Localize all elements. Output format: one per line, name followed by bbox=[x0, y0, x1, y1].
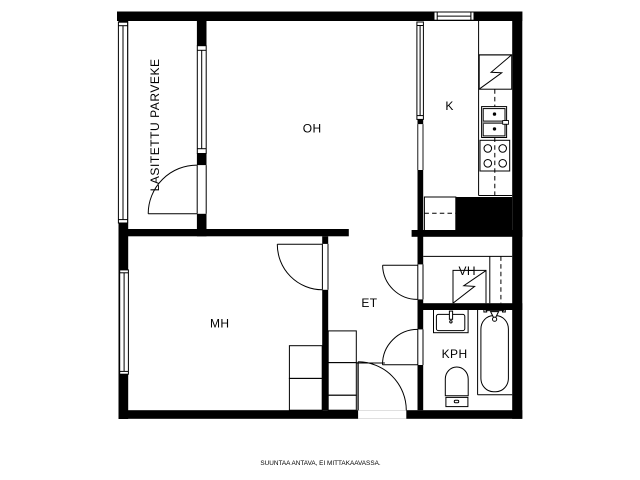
svg-text:VH: VH bbox=[458, 264, 475, 278]
svg-text:MH: MH bbox=[210, 317, 229, 331]
svg-text:OH: OH bbox=[303, 122, 322, 136]
svg-text:KPH: KPH bbox=[442, 347, 468, 361]
svg-text:LASITETTU PARVEKE: LASITETTU PARVEKE bbox=[148, 58, 162, 191]
svg-text:K: K bbox=[445, 99, 453, 113]
svg-text:ET: ET bbox=[361, 296, 377, 310]
svg-text:SUUNTAA ANTAVA, EI MITTAKAAVAS: SUUNTAA ANTAVA, EI MITTAKAAVASSA. bbox=[260, 460, 380, 467]
